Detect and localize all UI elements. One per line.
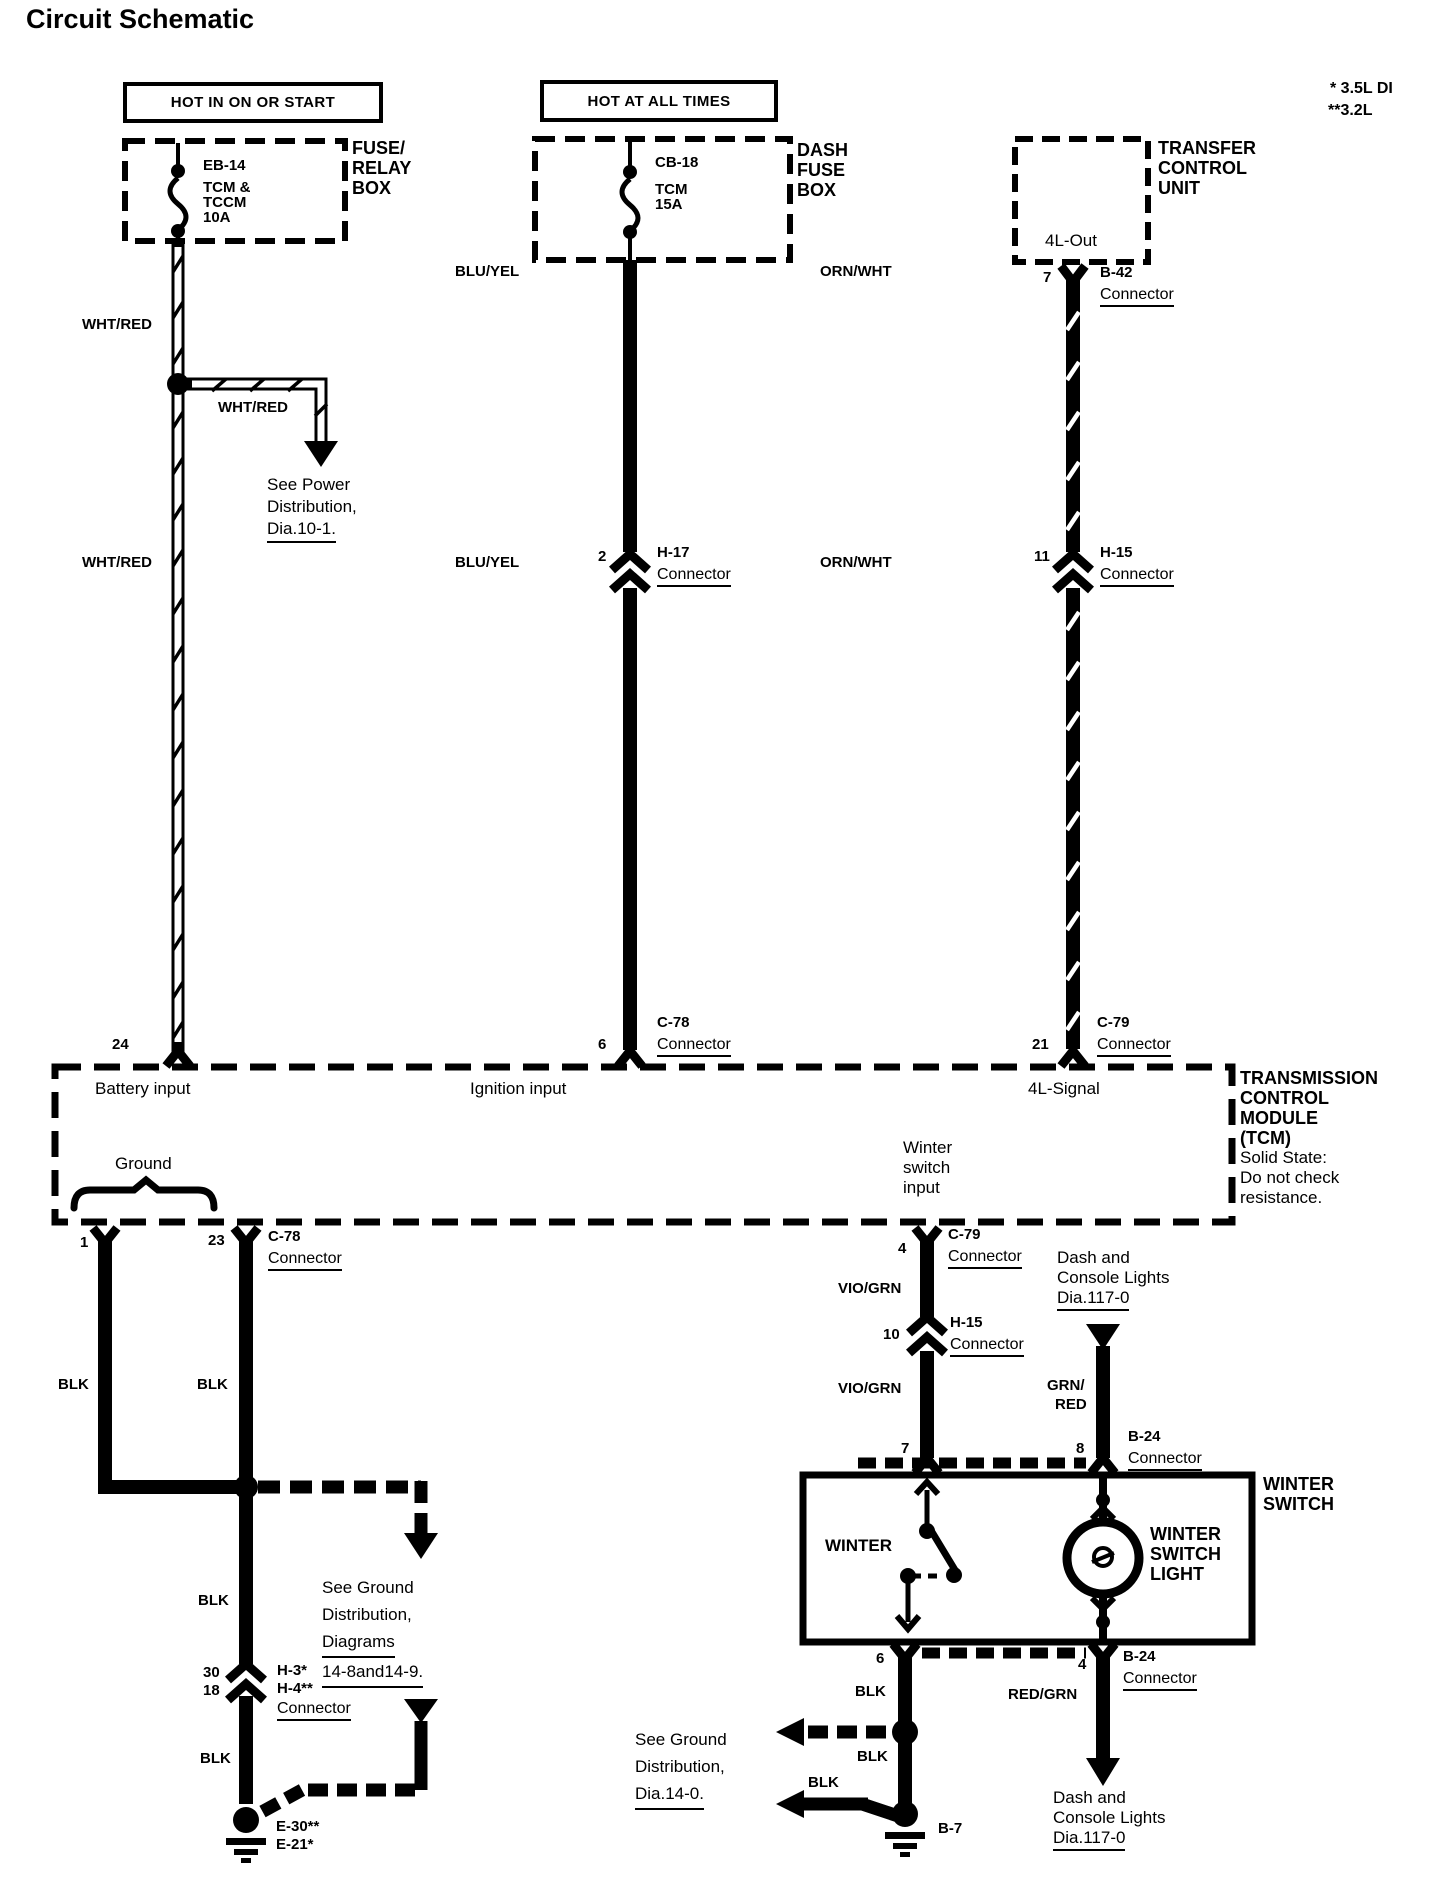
- connector-word-b24-bottom: Connector: [1123, 1670, 1197, 1691]
- tcm-battery-input: Battery input: [95, 1078, 190, 1100]
- connector-symbol-pin6: [618, 1051, 642, 1066]
- fuse-id-cb18: CB-18: [655, 154, 698, 171]
- connector-id-h3: H-3*: [277, 1662, 307, 1679]
- wire-color-orn-wht-1: ORN/WHT: [820, 263, 892, 280]
- see-power-distribution-ref: See Power Distribution, Dia.10-1.: [267, 474, 357, 543]
- winter-switch-symbol: [897, 1482, 962, 1629]
- pin-30: 30: [203, 1664, 220, 1681]
- connector-word-h15: Connector: [1100, 566, 1174, 587]
- wire-color-red: RED: [1055, 1396, 1087, 1413]
- winter-switch-box-label: WINTER SWITCH: [1263, 1474, 1334, 1514]
- connector-id-h15-winter: H-15: [950, 1314, 983, 1331]
- see-ground-diagrams-ref: See Ground Distribution, Diagrams 14-8an…: [322, 1574, 423, 1688]
- fuse-symbol-left: [170, 143, 186, 241]
- dash-console-lights-ref-top: Dash and Console Lights Dia.117-0: [1057, 1248, 1169, 1311]
- pin-8: 8: [1076, 1440, 1084, 1457]
- dash-console-lights-ref-bottom: Dash and Console Lights Dia.117-0: [1053, 1788, 1165, 1851]
- wire-color-grn: GRN/: [1047, 1377, 1085, 1394]
- wire-color-red-grn: RED/GRN: [1008, 1686, 1077, 1703]
- wire-color-blk-branch: BLK: [808, 1774, 839, 1791]
- pin-2: 2: [598, 548, 606, 565]
- wire-color-blk-1: BLK: [58, 1376, 89, 1393]
- offpage-arrow-dia14-b: [776, 1790, 804, 1818]
- wire-color-blu-yel-2: BLU/YEL: [455, 554, 519, 571]
- connector-id-c78-ground: C-78: [268, 1228, 301, 1245]
- wire-color-blu-yel-1: BLU/YEL: [455, 263, 519, 280]
- tcm-ignition-input: Ignition input: [470, 1078, 566, 1100]
- orn-wht-wire: [1055, 266, 1091, 1066]
- blu-yel-wire: [612, 260, 648, 1066]
- connector-word-b24-top: Connector: [1128, 1450, 1202, 1471]
- pin-4-c79: 4: [898, 1240, 906, 1257]
- engine-note-1: * 3.5L DI: [1330, 80, 1393, 98]
- dash-fuse-box-label: DASH FUSE BOX: [797, 140, 848, 200]
- tcm-name-label: TRANSMISSION CONTROL MODULE (TCM): [1240, 1068, 1378, 1148]
- connector-id-b24-bottom: B-24: [1123, 1648, 1156, 1665]
- wire-color-vio-grn-1: VIO/GRN: [838, 1280, 901, 1297]
- output-label-4l-out: 4L-Out: [1045, 230, 1097, 252]
- connector-symbol-h17: [612, 554, 648, 590]
- ground-bracket: [74, 1180, 214, 1208]
- fuse-symbol-middle: [622, 141, 638, 260]
- wire-color-blk-4: BLK: [200, 1750, 231, 1767]
- transfer-control-unit-label: TRANSFER CONTROL UNIT: [1158, 138, 1256, 198]
- wire-color-wht-red-branch: WHT/RED: [218, 399, 288, 416]
- fuse-relay-box-label: FUSE/ RELAY BOX: [352, 138, 411, 198]
- connector-symbol-h15: [1055, 554, 1091, 590]
- page-title: Circuit Schematic: [26, 4, 254, 35]
- pin-6-switch-out: 6: [876, 1650, 884, 1667]
- connector-id-c79-winter: C-79: [948, 1226, 981, 1243]
- pin-23: 23: [208, 1232, 225, 1249]
- connector-word-b42: Connector: [1100, 286, 1174, 307]
- connector-id-b24-top: B-24: [1128, 1428, 1161, 1445]
- connector-word-c79-winter: Connector: [948, 1248, 1022, 1269]
- connector-id-h4: H-4**: [277, 1680, 313, 1697]
- winter-switch-light-symbol: [1067, 1477, 1139, 1640]
- pin-21: 21: [1032, 1036, 1049, 1053]
- ground-id-e30: E-30**: [276, 1818, 319, 1835]
- banner-hot-in-on-or-start: HOT IN ON OR START: [123, 82, 383, 123]
- pin-6: 6: [598, 1036, 606, 1053]
- wire-color-blk-3: BLK: [198, 1592, 229, 1609]
- connector-symbol-h15-lower: [909, 1317, 945, 1353]
- fuse-rating-15a: 15A: [655, 196, 683, 213]
- connector-id-c79: C-79: [1097, 1014, 1130, 1031]
- pin-11: 11: [1034, 548, 1050, 565]
- connector-word-c79: Connector: [1097, 1036, 1171, 1057]
- pin-7: 7: [1043, 269, 1051, 286]
- pin-24: 24: [112, 1036, 129, 1053]
- wire-color-wht-red-2: WHT/RED: [82, 554, 152, 571]
- wire-color-orn-wht-2: ORN/WHT: [820, 554, 892, 571]
- banner-hot-at-all-times: HOT AT ALL TIMES: [540, 80, 778, 122]
- junction-dot-wht-red: [167, 373, 189, 395]
- pin-10: 10: [883, 1326, 900, 1343]
- wire-color-vio-grn-2: VIO/GRN: [838, 1380, 901, 1397]
- connector-word-c78-ground: Connector: [268, 1250, 342, 1271]
- tcm-4l-signal: 4L-Signal: [1028, 1078, 1100, 1100]
- offpage-arrow-ground-ref: [404, 1533, 438, 1559]
- connector-id-b42: B-42: [1100, 264, 1133, 281]
- wht-red-wire: [166, 241, 338, 1066]
- connector-word-h15-winter: Connector: [950, 1336, 1024, 1357]
- offpage-arrow-lights-out: [1086, 1758, 1120, 1786]
- connector-id-h15: H-15: [1100, 544, 1133, 561]
- engine-note-2: **3.2L: [1328, 102, 1372, 120]
- pin-1: 1: [80, 1234, 88, 1251]
- fuse-id-eb14: EB-14: [203, 157, 246, 174]
- wire-color-blk-out-1: BLK: [855, 1683, 886, 1700]
- pin-7-switch: 7: [901, 1440, 909, 1457]
- winter-switch-light-label: WINTER SWITCH LIGHT: [1150, 1524, 1221, 1584]
- switch-label-winter: WINTER: [825, 1536, 892, 1556]
- pin-4-b24: 4: [1078, 1656, 1086, 1673]
- pin-18: 18: [203, 1682, 220, 1699]
- connector-symbol-h3-h4: [228, 1664, 264, 1700]
- see-ground-dia14-ref: See Ground Distribution, Dia.14-0.: [635, 1726, 727, 1810]
- connector-word-c78: Connector: [657, 1036, 731, 1057]
- ground-id-e21: E-21*: [276, 1836, 314, 1853]
- ground-dot-b7: [892, 1801, 918, 1827]
- junction-dot-ground: [234, 1475, 258, 1499]
- ground-id-b7: B-7: [938, 1820, 962, 1837]
- tcm-solid-state-note: Solid State: Do not check resistance.: [1240, 1148, 1339, 1208]
- wire-color-blk-2: BLK: [197, 1376, 228, 1393]
- wire-color-wht-red-1: WHT/RED: [82, 316, 152, 333]
- connector-word-h3-h4: Connector: [277, 1700, 351, 1721]
- tcm-winter-switch-input: Winter switch input: [903, 1138, 952, 1198]
- ground-dot-e30: [233, 1807, 259, 1833]
- tcm-ground-label: Ground: [115, 1153, 172, 1175]
- offpage-arrow-ground-in: [404, 1699, 438, 1723]
- connector-id-c78: C-78: [657, 1014, 690, 1031]
- fuse-rating-10a: 10A: [203, 209, 231, 226]
- offpage-arrow-dia14-a: [776, 1718, 804, 1746]
- connector-symbol-pin8: [1091, 1458, 1115, 1473]
- wire-color-blk-out-2: BLK: [857, 1748, 888, 1765]
- connector-word-h17: Connector: [657, 566, 731, 587]
- connector-id-h17: H-17: [657, 544, 690, 561]
- ground-circuit-wires: [93, 1228, 438, 1863]
- circuit-schematic-page: Circuit Schematic * 3.5L DI **3.2L HOT I…: [0, 0, 1456, 1882]
